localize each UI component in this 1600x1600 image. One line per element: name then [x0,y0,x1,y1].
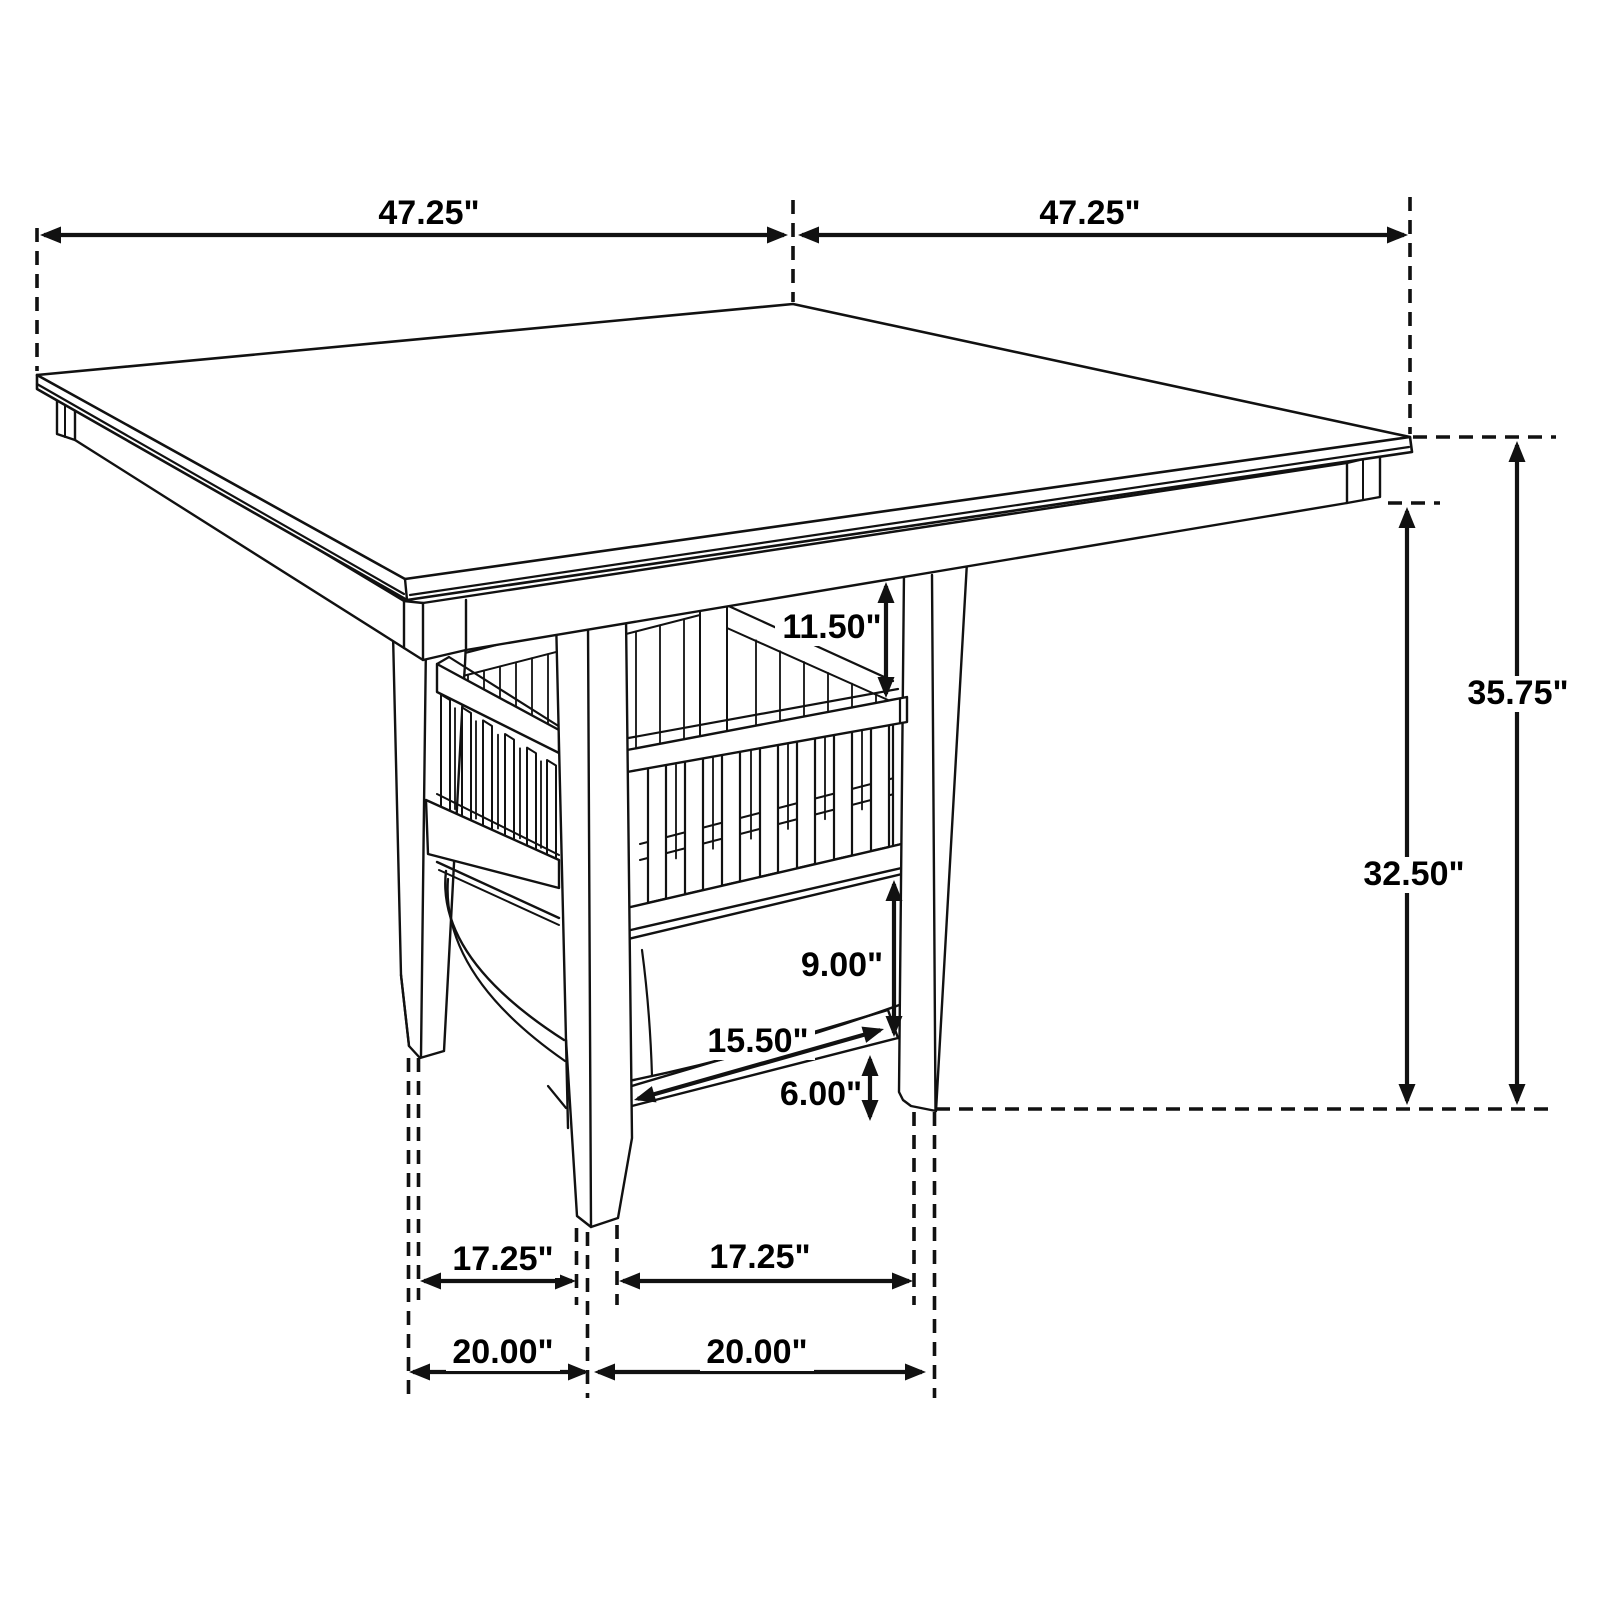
svg-text:47.25": 47.25" [1039,194,1140,232]
svg-text:32.50": 32.50" [1363,855,1464,893]
svg-text:20.00": 20.00" [452,1333,553,1371]
svg-text:11.50": 11.50" [782,608,881,646]
svg-text:35.75": 35.75" [1467,674,1568,712]
svg-text:17.25": 17.25" [452,1240,553,1278]
svg-text:6.00": 6.00" [780,1075,862,1113]
svg-text:47.25": 47.25" [378,194,479,232]
svg-text:20.00": 20.00" [706,1333,807,1371]
svg-text:9.00": 9.00" [801,946,883,984]
svg-text:17.25": 17.25" [709,1238,810,1276]
